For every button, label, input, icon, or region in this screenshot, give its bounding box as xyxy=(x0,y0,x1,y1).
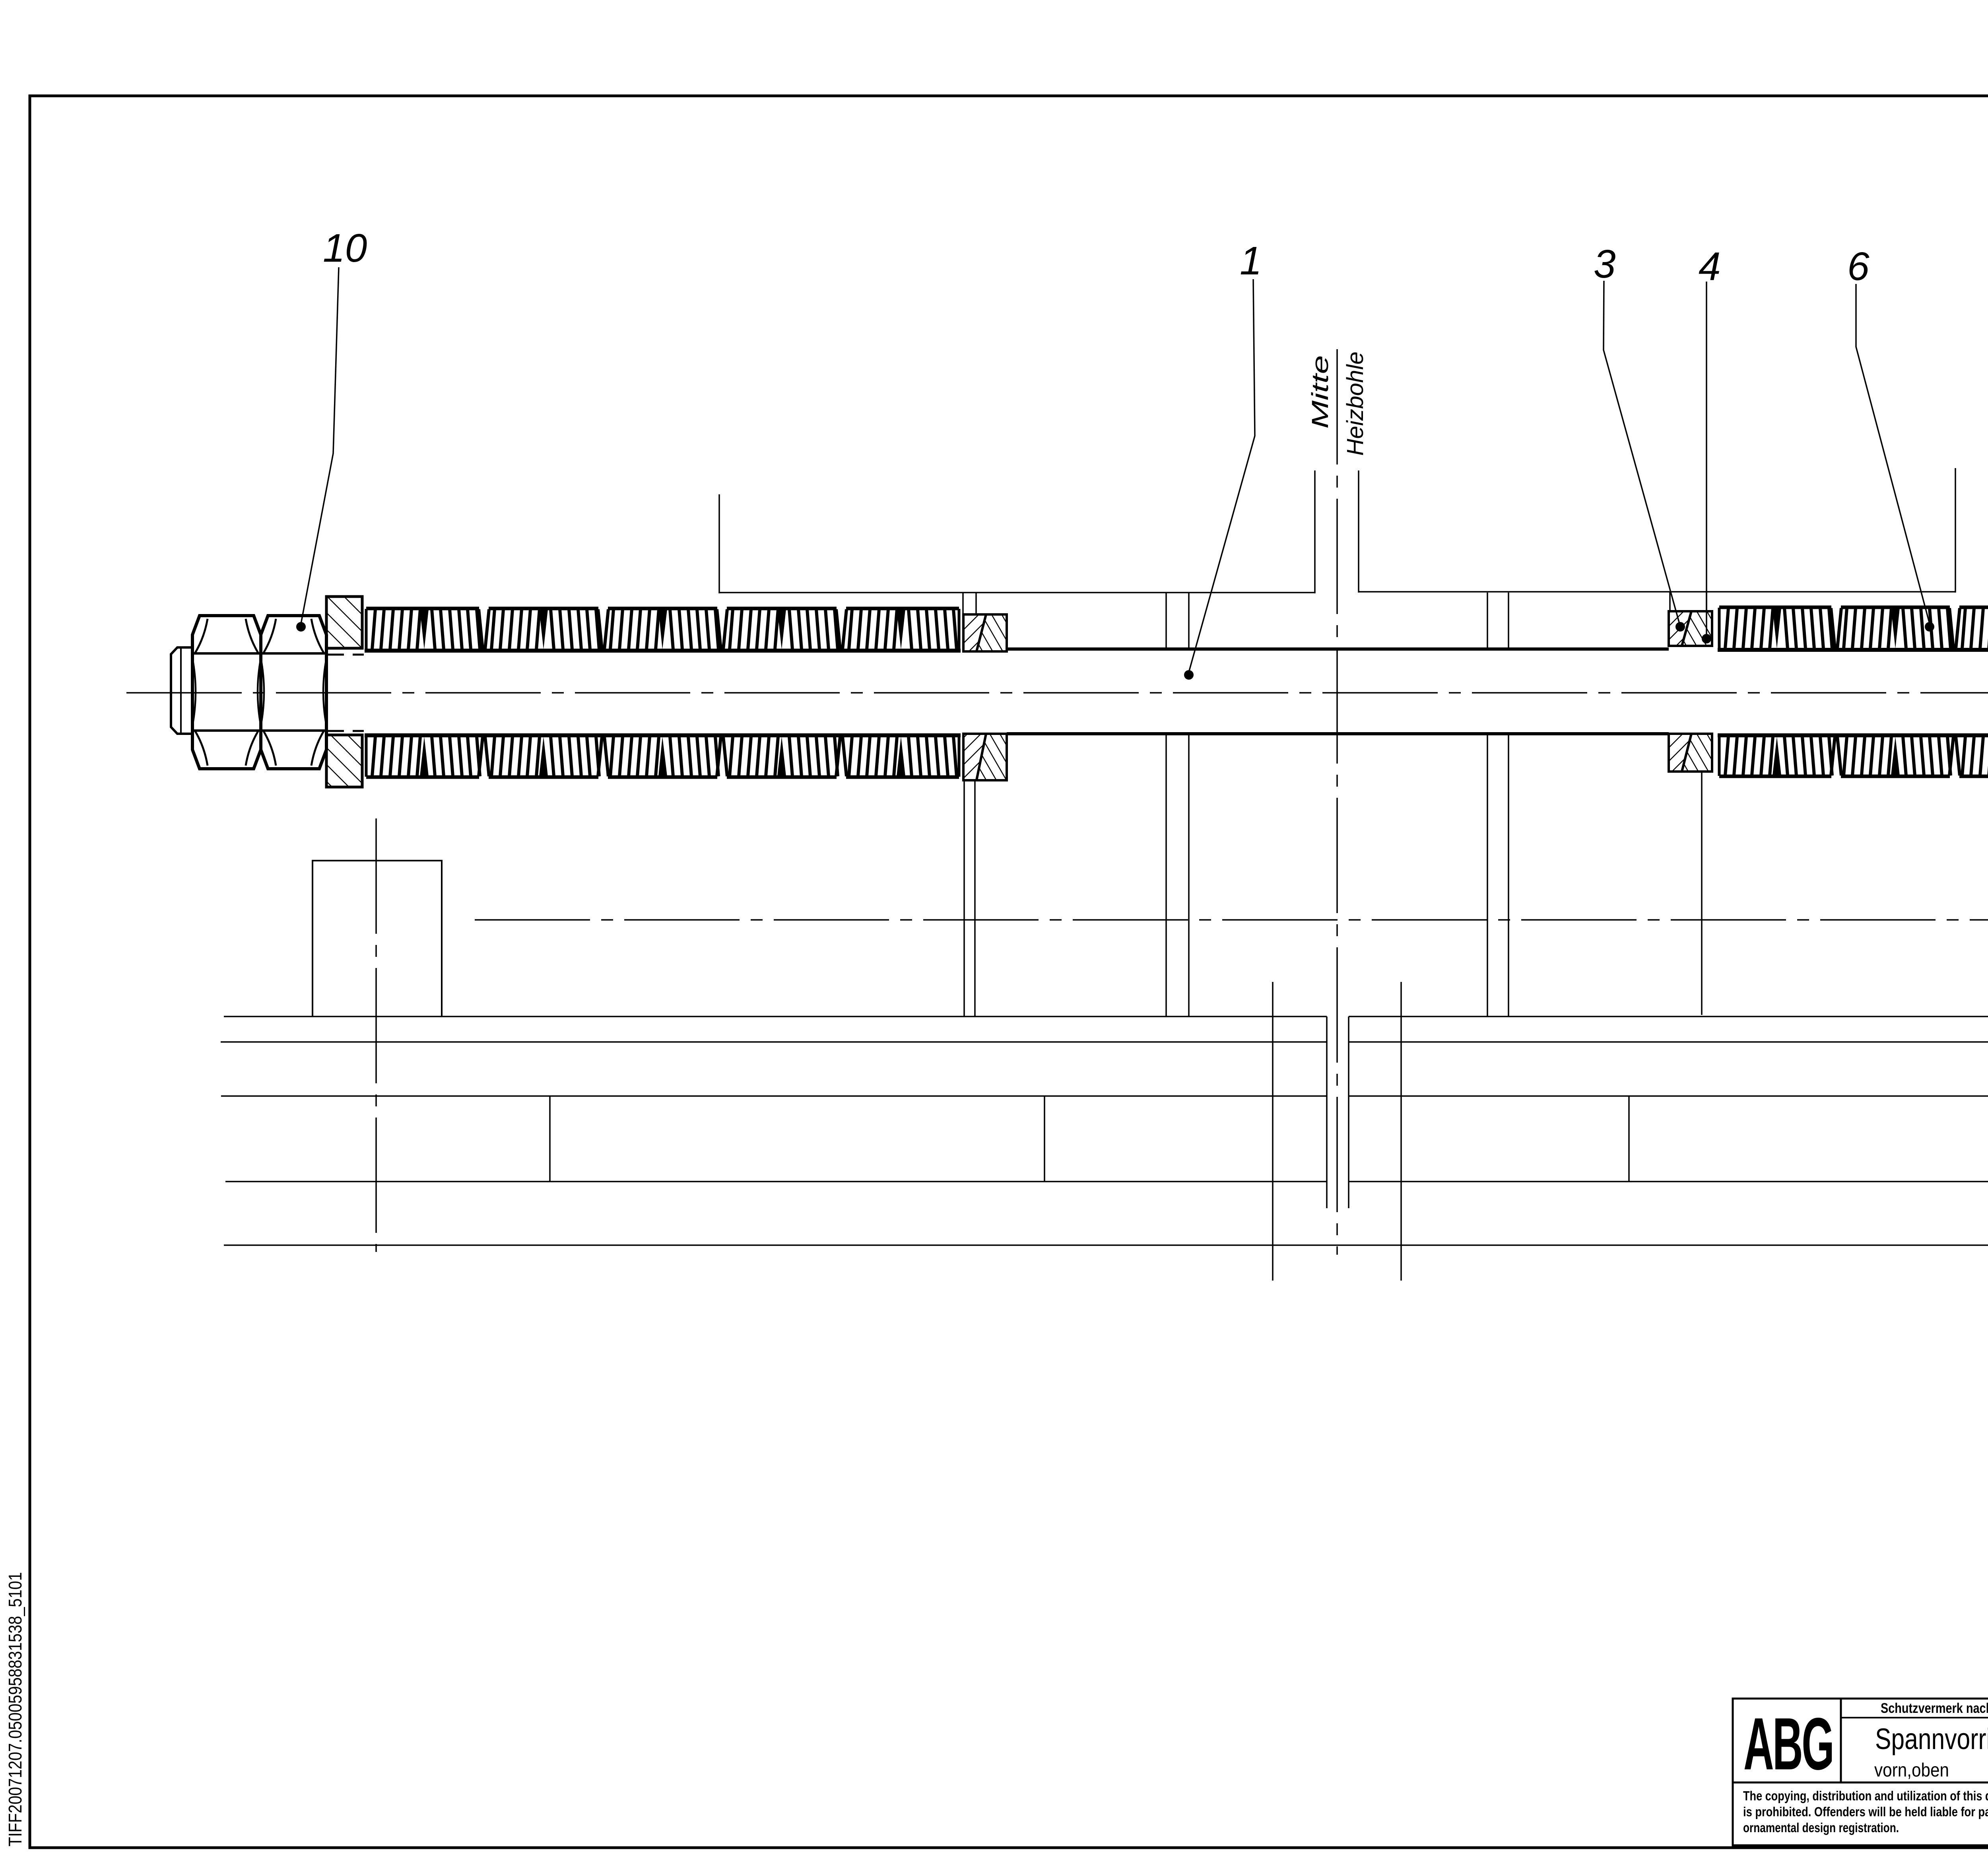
svg-text:10: 10 xyxy=(323,226,367,270)
svg-text:vorn,oben: vorn,oben xyxy=(1874,1760,1949,1781)
svg-text:TIFF20071207.05005958831538_51: TIFF20071207.05005958831538_5101 xyxy=(5,1572,25,1846)
svg-text:ornamental design registration: ornamental design registration. xyxy=(1743,1820,1899,1835)
svg-text:Mitte: Mitte xyxy=(1307,355,1333,429)
svg-text:The copying, distribution and: The copying, distribution and utilizatio… xyxy=(1743,1788,1988,1803)
svg-text:Heizbohle: Heizbohle xyxy=(1342,352,1368,456)
svg-text:Schutzvermerk nach DIN 34: Schutzvermerk nach DIN 34 xyxy=(1881,1701,1988,1716)
svg-text:is prohibited. Offenders will: is prohibited. Offenders will be held li… xyxy=(1743,1804,1988,1819)
svg-text:4: 4 xyxy=(1699,244,1721,289)
svg-text:1: 1 xyxy=(1240,239,1262,283)
svg-text:3: 3 xyxy=(1594,242,1616,286)
svg-text:Spannvorrichtung: Spannvorrichtung xyxy=(1875,1722,1988,1755)
svg-text:6: 6 xyxy=(1847,244,1870,289)
svg-text:ABG: ABG xyxy=(1743,1703,1833,1786)
